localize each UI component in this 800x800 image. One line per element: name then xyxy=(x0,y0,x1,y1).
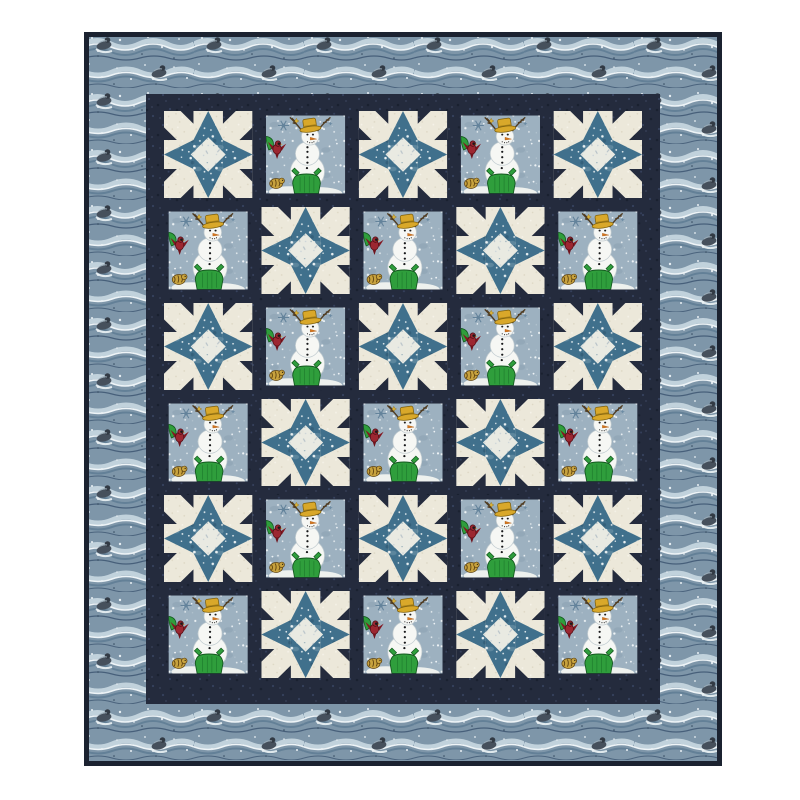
star-block xyxy=(554,495,642,582)
star-block xyxy=(359,111,447,198)
star-block xyxy=(164,111,252,198)
snowman-block xyxy=(456,495,544,584)
snowman-block xyxy=(261,303,349,392)
snowman-block xyxy=(554,399,642,488)
snowman-block xyxy=(164,207,252,296)
star-block xyxy=(359,495,447,582)
snowman-block xyxy=(554,591,642,680)
snowman-block xyxy=(164,399,252,488)
snowman-block xyxy=(456,111,544,200)
star-block xyxy=(456,207,544,294)
snowman-block xyxy=(261,111,349,200)
snowman-block xyxy=(359,207,447,296)
star-block xyxy=(456,591,544,678)
snowman-block xyxy=(261,495,349,584)
quilt-image xyxy=(84,32,722,766)
snowman-block xyxy=(554,207,642,296)
star-block xyxy=(456,399,544,486)
star-block xyxy=(554,111,642,198)
star-block xyxy=(261,207,349,294)
snowman-block xyxy=(456,303,544,392)
snowman-block xyxy=(359,591,447,680)
star-block xyxy=(164,303,252,390)
snowman-block xyxy=(359,399,447,488)
product-image-canvas xyxy=(0,0,800,800)
star-block xyxy=(554,303,642,390)
snowman-block xyxy=(164,591,252,680)
star-block xyxy=(359,303,447,390)
star-block xyxy=(261,399,349,486)
star-block xyxy=(164,495,252,582)
star-block xyxy=(261,591,349,678)
